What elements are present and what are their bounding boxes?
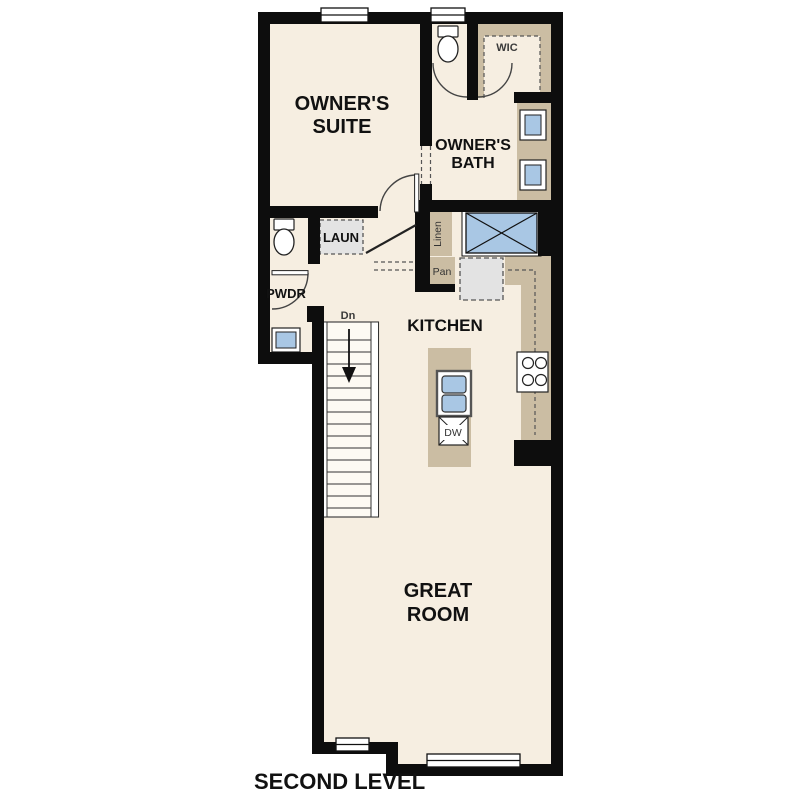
window-icon <box>321 8 368 22</box>
floor-plan-page: DW <box>0 0 810 810</box>
island-sink-icon <box>437 371 471 416</box>
vanity-sink-icon <box>520 110 546 140</box>
staircase <box>320 322 379 517</box>
great-room-label-line1: GREAT <box>404 580 473 602</box>
dishwasher-label: DW <box>444 427 462 439</box>
owners-bath-label-line2: BATH <box>451 155 494 172</box>
window-icon <box>431 8 465 22</box>
refrigerator-icon <box>460 258 503 300</box>
great-room-label-line2: ROOM <box>407 604 469 626</box>
powder-label: PWDR <box>266 286 306 301</box>
plan-title: SECOND LEVEL <box>254 769 425 794</box>
dishwasher-icon: DW <box>439 417 468 445</box>
shower-icon <box>462 210 541 256</box>
wic-label: WIC <box>496 42 517 54</box>
owners-bath-label-line1: OWNER'S <box>435 137 511 154</box>
powder-door-leaf <box>272 271 308 275</box>
toilet-icon <box>274 219 294 255</box>
powder-sink-icon <box>272 328 300 352</box>
toilet-icon <box>438 26 458 62</box>
laundry-label: LAUN <box>323 230 359 245</box>
floor-plan: DW <box>0 0 810 810</box>
suite-door-leaf <box>415 174 419 212</box>
stairs-down-label: Dn <box>341 310 356 322</box>
kitchen-label: KITCHEN <box>407 316 483 335</box>
window-icon <box>427 754 520 767</box>
window-icon <box>336 738 369 751</box>
owners-suite-label-line1: OWNER'S <box>295 93 390 115</box>
interior-floor <box>264 18 551 770</box>
pantry-label: Pan <box>433 266 452 278</box>
cooktop-icon <box>517 352 548 392</box>
owners-suite-label-line2: SUITE <box>313 116 372 138</box>
linen-label: Linen <box>432 221 444 247</box>
vanity-sink-icon <box>520 160 546 190</box>
